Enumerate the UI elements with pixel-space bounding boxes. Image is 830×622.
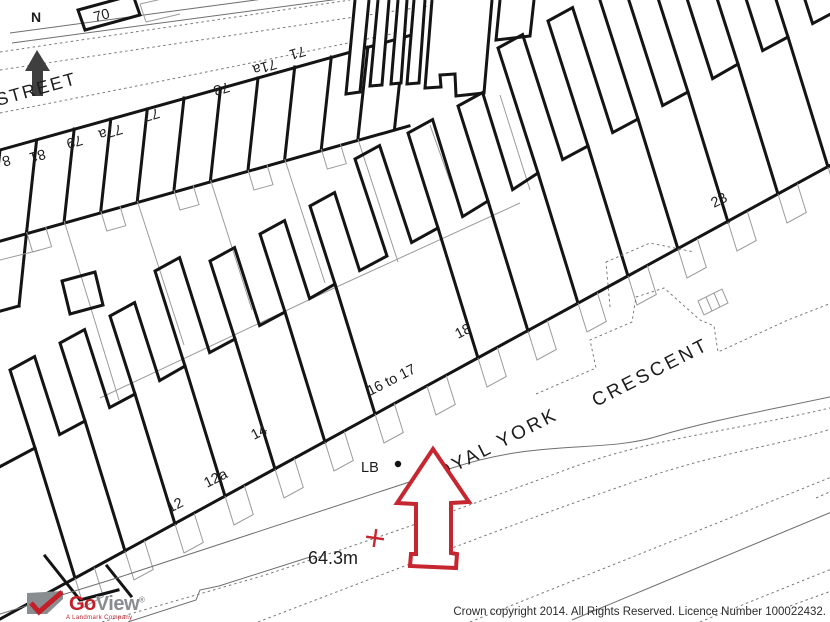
north-label: N [31,9,41,25]
spot-height-label: 64.3m [308,548,358,568]
logo-tagline: A Landmark Company [66,615,156,621]
garden-building-outline [62,272,103,314]
garden-walk-edge [572,511,830,620]
house-number-73: 73 [211,78,231,98]
top-row-left-extension [0,232,27,316]
letter-box-label: LB [361,460,379,476]
house-number-77: 77 [141,104,161,124]
top-row-front-edge [0,126,409,244]
rear-wing-strips [346,0,534,96]
spot-height-cross [365,528,385,548]
top-row-rear-yards [27,144,347,252]
logo-registered-mark: ® [139,595,144,604]
goview-logo: GoView® A Landmark Company [26,590,156,621]
logo-view-text: View [96,593,139,615]
house-number-12a: 12a [202,466,232,492]
top-row-dividers [0,37,405,242]
map-canvas: N STREET ROYAL YORK CRESCENT 70 8 81 79 … [0,0,830,622]
copyright-text: Crown copyright 2014. All Rights Reserve… [453,606,826,618]
road-name-crescent: CRESCENT [589,334,713,411]
house-number-71: 71 [287,42,307,62]
house-number-81: 81 [27,145,47,165]
logo-go-text: Go [69,593,96,615]
letter-box-dot [395,461,401,467]
house-number-79: 79 [64,131,84,151]
house-number-23: 23 [709,190,731,212]
crescent-dashed-3 [470,476,830,622]
crescent-dashed-4 [700,490,830,622]
house-number-8: 8 [0,151,12,169]
crescent-dashed-1 [102,407,830,622]
goview-logo-icon [26,590,66,616]
garden-steps [698,289,728,315]
os-map: N STREET ROYAL YORK CRESCENT 70 8 81 79 … [0,0,830,622]
top-street-edge-lines [10,0,347,43]
